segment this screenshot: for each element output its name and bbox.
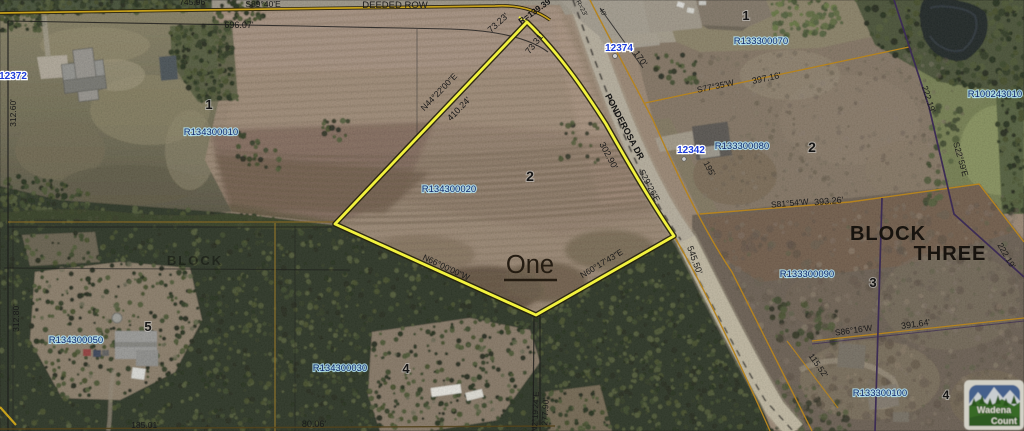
svg-text:696.07': 696.07' <box>224 20 254 30</box>
svg-text:BLOCK: BLOCK <box>167 253 223 268</box>
svg-text:R133300090: R133300090 <box>780 269 834 280</box>
svg-text:4: 4 <box>402 361 410 376</box>
svg-text:R133300100: R133300100 <box>853 388 907 399</box>
svg-text:185.01': 185.01' <box>131 420 159 430</box>
svg-text:R134300020: R134300020 <box>422 184 476 195</box>
svg-text:BLOCK: BLOCK <box>850 223 926 245</box>
svg-text:312.60': 312.60' <box>8 99 18 127</box>
svg-text:R134300030: R134300030 <box>313 363 367 374</box>
svg-text:277.90': 277.90' <box>539 397 550 425</box>
svg-text:80.06': 80.06' <box>302 419 327 429</box>
svg-text:12342: 12342 <box>677 145 705 156</box>
svg-text:THREE: THREE <box>914 243 987 265</box>
svg-text:1: 1 <box>742 8 749 23</box>
svg-text:R134300010: R134300010 <box>184 127 238 138</box>
svg-text:3: 3 <box>869 275 876 290</box>
svg-text:R134300050: R134300050 <box>49 335 103 346</box>
svg-text:R133300080: R133300080 <box>715 141 769 152</box>
svg-text:12374: 12374 <box>605 43 633 54</box>
svg-text:4: 4 <box>943 388 950 402</box>
svg-text:S89°40'E: S89°40'E <box>245 0 281 9</box>
svg-text:One: One <box>506 251 554 279</box>
svg-text:2: 2 <box>808 139 816 155</box>
svg-text:DEEDED ROW: DEEDED ROW <box>362 0 427 11</box>
svg-text:745.96': 745.96' <box>179 0 207 7</box>
svg-text:1: 1 <box>205 97 212 112</box>
svg-text:R133300070: R133300070 <box>734 36 788 47</box>
svg-text:312.80': 312.80' <box>11 304 21 332</box>
svg-text:5: 5 <box>144 319 151 334</box>
svg-text:12372: 12372 <box>0 71 27 82</box>
svg-text:R100243010: R100243010 <box>968 89 1022 100</box>
svg-text:2: 2 <box>526 168 534 184</box>
